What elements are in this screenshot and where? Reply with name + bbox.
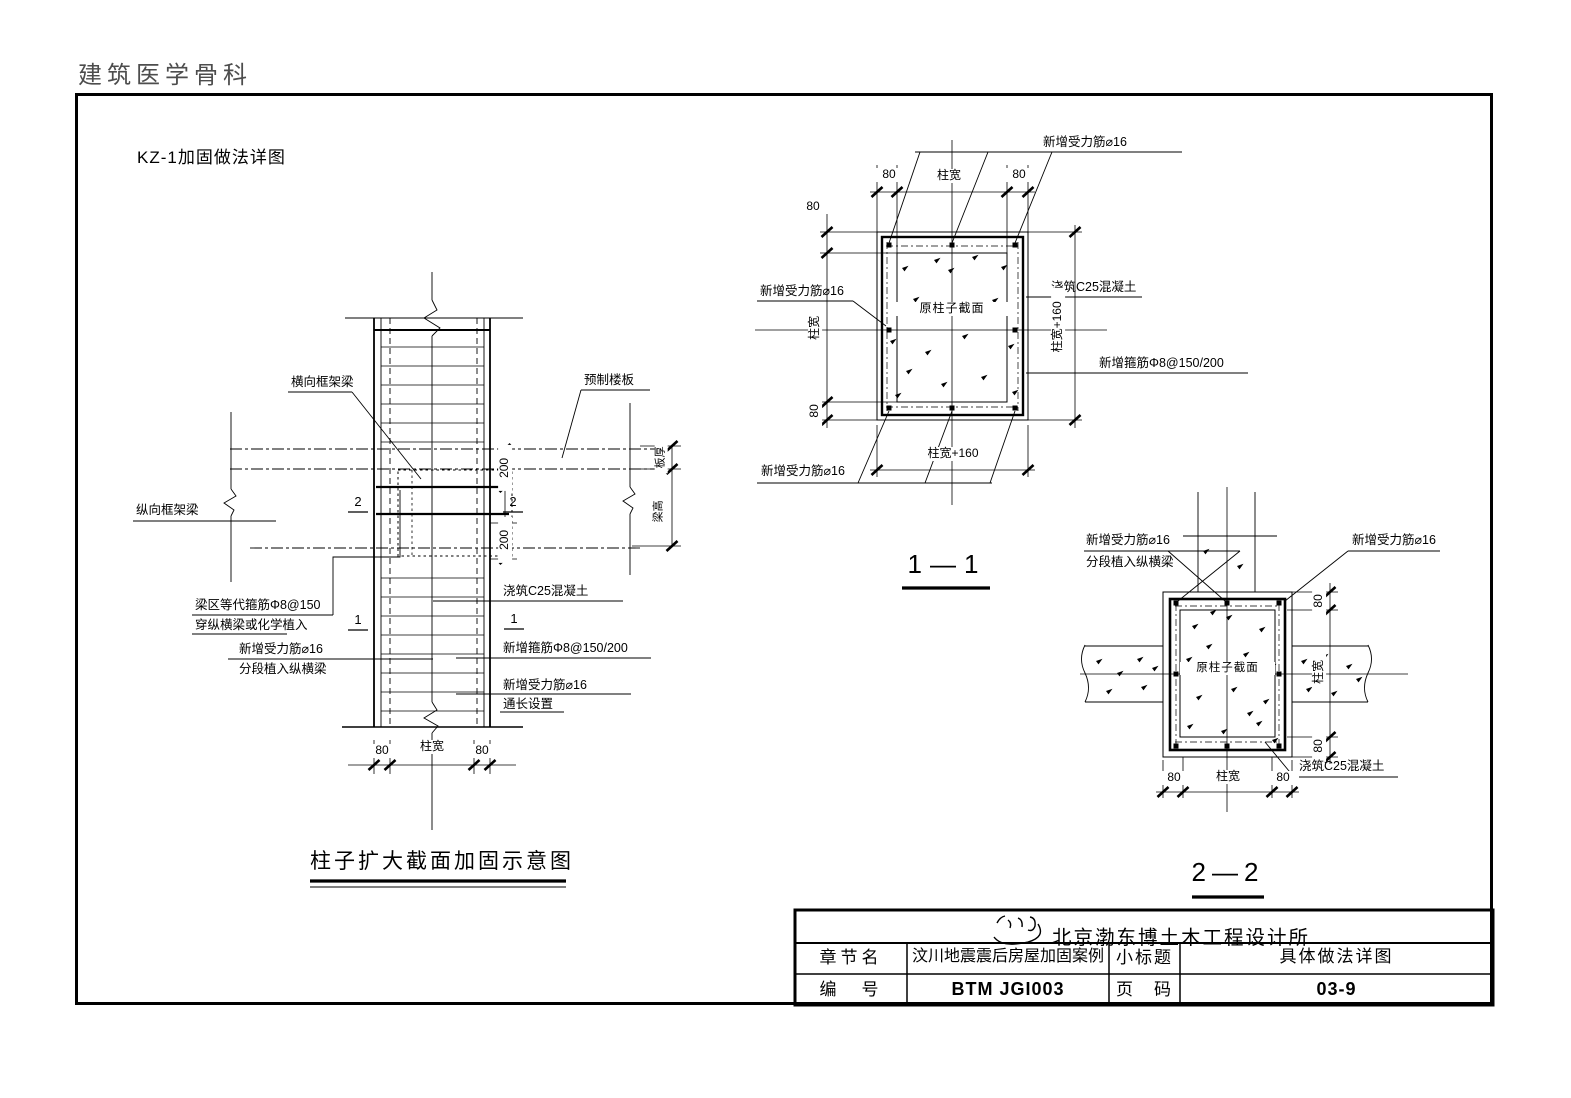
section-mark-1-left: 1: [350, 613, 366, 628]
section-2-2-drawing: [1080, 487, 1440, 897]
page: 建筑医学骨科 KZ-1加固做法详图: [0, 0, 1571, 1098]
s11-label-new-rebar-bottom: 新增受力筋⌀16: [761, 464, 845, 478]
dim-80-right: 80: [466, 744, 498, 758]
dim-200-lower: 200: [498, 517, 512, 563]
label-transverse-frame-beam: 横向框架梁: [291, 375, 354, 389]
s11-dim-80-left-top: 80: [797, 200, 829, 214]
chapter-label: 章节名: [795, 948, 907, 968]
label-longitudinal-frame-beam: 纵向框架梁: [136, 503, 199, 517]
s22-dim-80-bottom-left: 80: [1158, 771, 1190, 785]
number-value: BTM JGI003: [907, 979, 1109, 1000]
cad-linework: [0, 0, 1571, 1098]
s11-label-new-rebar-left: 新增受力筋⌀16: [760, 284, 844, 298]
s22-label-new-rebar-topright: 新增受力筋⌀16: [1352, 533, 1436, 547]
section-mark-2-left: 2: [350, 495, 366, 510]
s22-dim-colwidth-right: 柱宽: [1312, 651, 1326, 693]
s11-dim-80-top-right: 80: [1003, 168, 1035, 182]
section-mark-2-right: 2: [505, 495, 521, 510]
s11-dim-colwidth-left: 柱宽: [808, 307, 822, 349]
elevation-drawing: [133, 272, 681, 887]
dim-80-left: 80: [366, 744, 398, 758]
section-mark-1-right: 1: [506, 612, 522, 627]
label-cast-concrete: 浇筑C25混凝土: [503, 584, 588, 598]
s22-dim-colwidth-bottom: 柱宽: [1207, 770, 1249, 784]
s22-label-new-rebar-topleft-line1: 新增受力筋⌀16: [1086, 533, 1170, 547]
s11-label-original-column: 原柱子截面: [895, 302, 1009, 316]
s22-dim-80-bottom-right: 80: [1267, 771, 1299, 785]
company-name: 北京渤东博土木工程设计所: [1052, 921, 1310, 950]
s11-dim-colwidth160-right: 柱宽+160: [1051, 288, 1065, 366]
section-1-1-title: 1—1: [902, 550, 992, 580]
label-new-rebar-line1: 新增受力筋⌀16: [239, 642, 323, 656]
s22-label-cast-concrete: 浇筑C25混凝土: [1299, 759, 1384, 773]
s22-label-original-column: 原柱子截面: [1180, 662, 1275, 675]
s11-dim-colwidth160-bottom: 柱宽+160: [912, 447, 994, 461]
s11-label-new-rebar-top: 新增受力筋⌀16: [1043, 135, 1127, 149]
dim-200-upper: 200: [498, 445, 512, 491]
dim-beam-height: 梁高: [653, 495, 666, 527]
elevation-caption: 柱子扩大截面加固示意图: [310, 850, 566, 874]
s22-label-new-rebar-topleft-line2: 分段植入纵横梁: [1086, 555, 1174, 569]
s11-dim-colwidth-top: 柱宽: [928, 169, 970, 183]
s11-label-new-stirrup: 新增箍筋Φ8@150/200: [1099, 356, 1224, 370]
s11-dim-80-left-bottom: 80: [808, 395, 822, 427]
label-precast-slab: 预制楼板: [584, 373, 634, 387]
s22-dim-80-right-top: 80: [1312, 585, 1326, 617]
dim-slab-thickness: 板厚: [655, 441, 668, 473]
chapter-value: 汶川地震震后房屋加固案例: [907, 948, 1109, 966]
number-label: 编 号: [795, 980, 907, 1000]
label-new-rebar-line2: 分段植入纵横梁: [239, 662, 327, 676]
subtitle-value: 具体做法详图: [1180, 947, 1493, 967]
label-new-rebar-full-line2: 通长设置: [503, 697, 553, 711]
page-number-label: 页 码: [1109, 980, 1180, 1000]
label-new-stirrup: 新增箍筋Φ8@150/200: [503, 641, 628, 655]
s11-dim-80-top-left: 80: [873, 168, 905, 182]
concrete-speckles-1-1: [890, 255, 1019, 399]
dim-column-width: 柱宽: [411, 740, 453, 754]
company-logo: [994, 916, 1040, 944]
label-equivalent-stirrup-line2: 穿纵横梁或化学植入: [195, 618, 308, 632]
section-2-2-title: 2—2: [1189, 858, 1267, 888]
s22-dim-80-right-bottom: 80: [1312, 730, 1326, 762]
page-number-value: 03-9: [1180, 979, 1493, 1000]
label-new-rebar-full-line1: 新增受力筋⌀16: [503, 678, 587, 692]
subtitle-label: 小标题: [1109, 948, 1180, 968]
label-equivalent-stirrup-line1: 梁区等代箍筋Φ8@150: [195, 598, 320, 612]
